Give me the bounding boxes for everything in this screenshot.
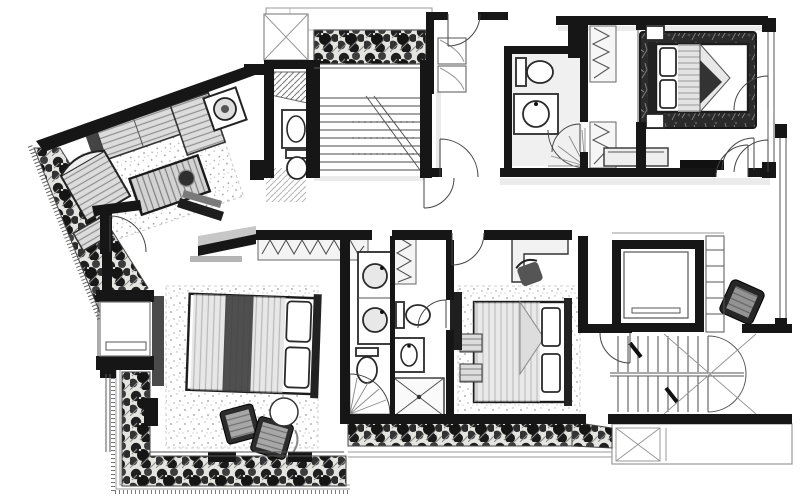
terrace-bottom-right [612,424,792,464]
headboard [564,298,572,406]
stool [460,334,482,352]
master-bed [186,290,322,399]
toilet-bowl [287,157,307,179]
master-east-wall [340,240,350,424]
toilet-tank [356,348,378,356]
headboard [648,42,656,114]
pillow [542,308,560,346]
stair-left-wall [306,60,320,178]
pillow [660,80,676,108]
suite-bottom-wall [500,168,716,177]
floor-plan-canvas: Hand-drawn apartment floor plan, ink on … [0,0,800,497]
skylight-void [264,14,308,60]
bay-window [96,290,154,370]
toilet-tank [396,302,404,328]
toilet-bowl [527,61,553,83]
shower-x-tray [394,378,444,416]
bed-throw-band [222,295,253,392]
nightstand [646,114,664,128]
pillow [660,48,676,76]
planter-bottom-center [348,420,612,448]
toilet-bowl [357,357,377,383]
pillow [542,354,560,392]
linen-closet [394,234,416,284]
curtain-panel [152,296,164,386]
bedroom-1 [640,26,756,128]
floor-plan: Hand-drawn apartment floor plan, ink on … [0,0,800,497]
pillow [285,347,310,388]
pillow [286,301,311,342]
planter-top [314,30,426,64]
stair2-bottom-wall [608,414,792,424]
toilet-tank [516,58,526,86]
bedroom2-bed [474,298,572,406]
round-side-table [270,398,298,426]
stool [460,364,482,382]
nightstand [646,26,664,40]
